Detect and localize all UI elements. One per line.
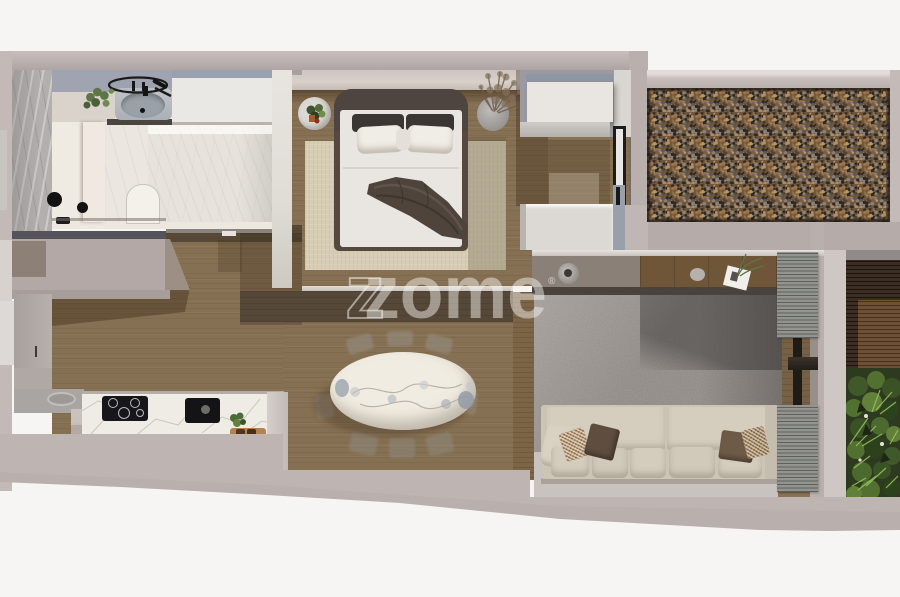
svg-text:zome: zome	[364, 260, 547, 334]
svg-text:®: ®	[548, 276, 556, 287]
